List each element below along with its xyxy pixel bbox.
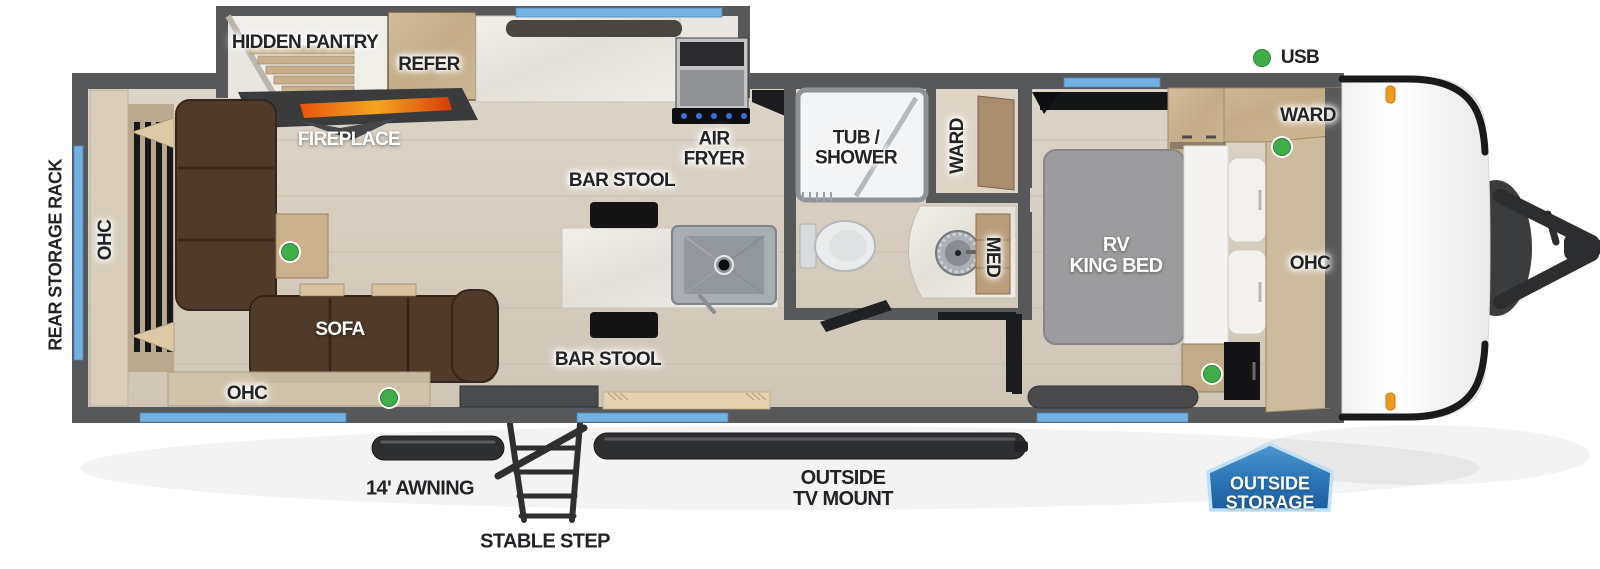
med-cabinet bbox=[976, 214, 1010, 294]
rear-ohc-cabinet bbox=[90, 90, 128, 406]
floorplan-drawing bbox=[0, 0, 1600, 569]
air-fryer-range bbox=[672, 38, 750, 124]
led-dot-lower-ohc bbox=[378, 387, 400, 409]
usb-dot bbox=[1251, 47, 1273, 69]
wardrobe-door-open bbox=[1266, 136, 1330, 412]
bed-platform bbox=[1184, 146, 1228, 348]
window-bottom-left bbox=[140, 413, 346, 422]
ward-closet bbox=[936, 90, 1018, 193]
led-dot-bedroom-bench bbox=[1201, 363, 1223, 385]
entry-rug bbox=[603, 392, 770, 409]
tub-shower bbox=[798, 90, 926, 202]
marker-light-top bbox=[1386, 86, 1395, 103]
vanity-drain bbox=[955, 250, 961, 256]
window-slide-top bbox=[516, 8, 722, 17]
range-hood bbox=[506, 20, 682, 37]
window-rear-wall bbox=[74, 146, 83, 360]
vanity bbox=[908, 206, 1016, 298]
sink bbox=[672, 226, 776, 312]
tray-table-2 bbox=[372, 284, 416, 296]
front-cap bbox=[1342, 76, 1490, 420]
bar-stool-top bbox=[590, 202, 658, 228]
bench-roll bbox=[1028, 386, 1198, 408]
tray-table-1 bbox=[300, 284, 344, 296]
refrigerator bbox=[388, 12, 476, 100]
window-bottom-center bbox=[577, 413, 728, 422]
window-bottom-right bbox=[1037, 413, 1188, 422]
bar-stool-bottom bbox=[590, 312, 658, 338]
led-dot-living bbox=[279, 241, 301, 263]
door-frame-h bbox=[938, 312, 1016, 320]
awning-tubes bbox=[372, 433, 1028, 460]
toilet bbox=[800, 221, 875, 271]
led-dot-bedroom-ward bbox=[1271, 136, 1293, 158]
window-bedroom-top bbox=[1064, 78, 1160, 87]
entry-mat bbox=[460, 386, 598, 407]
floorplan-stage: HIDDEN PANTRY REFER FIREPLACE AIR FRYER … bbox=[0, 0, 1600, 569]
king-bed-mattress bbox=[1044, 150, 1184, 344]
marker-light-bottom bbox=[1386, 393, 1395, 410]
sink-drain bbox=[719, 260, 730, 271]
